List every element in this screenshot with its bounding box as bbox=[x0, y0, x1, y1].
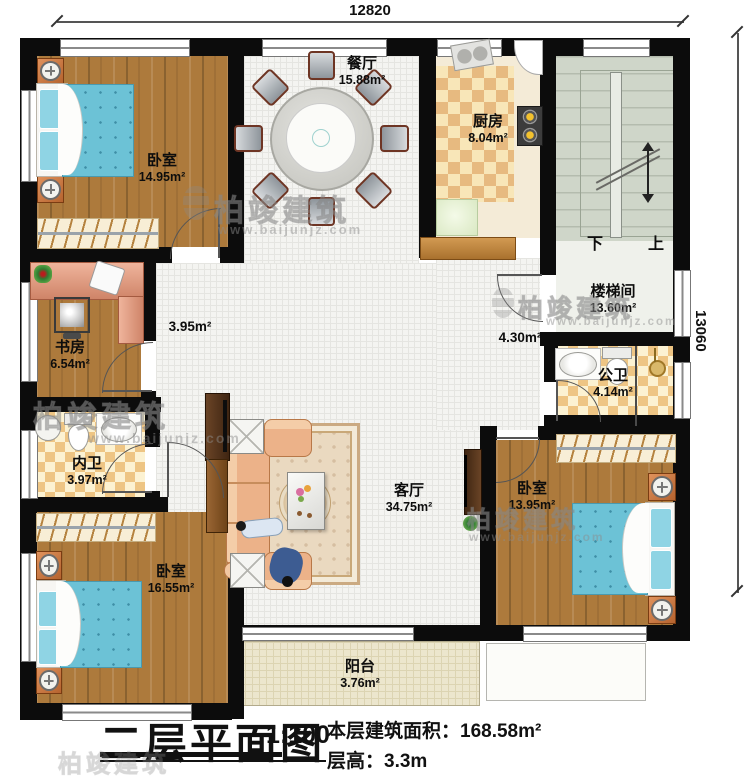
title-height-line: 层高：3.3m bbox=[327, 746, 427, 773]
window-right-landing bbox=[674, 270, 691, 337]
room-label-bedroom-br: 卧室 13.95m² bbox=[503, 481, 561, 512]
tv-screen-icon bbox=[223, 400, 227, 452]
kitchen-counter-slider bbox=[420, 237, 516, 260]
window-top-bedroomtl bbox=[60, 39, 190, 57]
dimension-line-top bbox=[57, 21, 684, 23]
nightstand bbox=[648, 596, 676, 624]
floor-drain-icon bbox=[649, 360, 666, 377]
area-label-hall-east: 4.30m² bbox=[492, 330, 548, 345]
cup-icon bbox=[297, 511, 302, 516]
door-bedroomtl-leaf bbox=[218, 208, 220, 258]
nightstand bbox=[37, 176, 64, 203]
door-bathpub-leaf bbox=[556, 380, 558, 421]
lamp-icon bbox=[40, 61, 61, 81]
area-value: 168.58m² bbox=[460, 721, 541, 742]
lamp-icon bbox=[39, 670, 59, 691]
room-label-stairwell: 楼梯间 13.60m² bbox=[575, 284, 651, 315]
dimension-right-value: 13060 bbox=[692, 310, 709, 380]
balcony-sliding-door bbox=[242, 627, 414, 641]
door-stairhall-leaf bbox=[497, 274, 542, 276]
stair-arrow-line bbox=[647, 150, 649, 194]
height-label: 层高： bbox=[327, 751, 384, 772]
side-table bbox=[230, 553, 265, 588]
stair-arrow-down-icon bbox=[642, 194, 654, 203]
window-right-bathpub bbox=[674, 362, 691, 419]
wall-stair-bath bbox=[540, 332, 690, 346]
room-label-balcony: 阳台 3.76m² bbox=[333, 659, 387, 690]
title-scale: 1:100 bbox=[266, 721, 330, 750]
kitchen-fridge bbox=[436, 199, 478, 236]
nightstand bbox=[36, 551, 62, 580]
title-underline-thin bbox=[100, 760, 326, 762]
room-label-bath-public: 公卫 4.14m² bbox=[585, 368, 641, 399]
sofa-three-seat bbox=[226, 443, 270, 567]
room-label-dining: 餐厅 15.88m² bbox=[330, 56, 394, 87]
dining-chair bbox=[308, 197, 335, 226]
shower-head-icon bbox=[35, 415, 61, 441]
title-underline-thick bbox=[100, 752, 282, 757]
person-head bbox=[236, 521, 246, 531]
stair-arrow-up-icon bbox=[642, 142, 654, 151]
room-label-living: 客厅 34.75m² bbox=[378, 483, 440, 514]
plant-icon bbox=[463, 516, 478, 531]
sink bbox=[101, 417, 137, 442]
room-label-kitchen: 厨房 8.04m² bbox=[455, 114, 521, 145]
leaf-icon bbox=[298, 496, 304, 502]
tv-screen-icon bbox=[464, 455, 467, 507]
door-bedroombl-leaf bbox=[167, 442, 169, 497]
shower-cord bbox=[654, 348, 656, 362]
wall-study-bottom bbox=[20, 397, 161, 412]
title-area-line: 本层建筑面积：168.58m² bbox=[327, 716, 541, 743]
coffee-table bbox=[287, 472, 325, 530]
window-bottom-bedroombr bbox=[523, 626, 647, 642]
wall-bedroomtl-bottom-b bbox=[220, 247, 244, 263]
floor-plan: 卧室 14.95m² 餐厅 15.88m² 厨房 8.04m² 楼梯间 13.6… bbox=[0, 0, 750, 782]
door-bathpriv-leaf bbox=[102, 491, 152, 493]
lamp-icon bbox=[39, 554, 59, 577]
room-label-bedroom-tl: 卧室 14.95m² bbox=[130, 153, 194, 184]
wall-bathpriv-bottom bbox=[20, 497, 168, 512]
wardrobe bbox=[37, 218, 159, 249]
computer-monitor-icon bbox=[54, 297, 90, 333]
terrace-outline bbox=[486, 643, 646, 701]
side-table bbox=[229, 419, 264, 454]
wardrobe bbox=[36, 513, 156, 542]
flower-icon bbox=[296, 488, 304, 496]
cup-icon bbox=[307, 513, 312, 518]
plant-icon bbox=[34, 265, 52, 283]
flower-icon bbox=[304, 485, 311, 492]
stair-flight-outline bbox=[580, 70, 678, 237]
person-head bbox=[282, 576, 293, 587]
height-value: 3.3m bbox=[384, 751, 427, 772]
pillow bbox=[650, 550, 672, 590]
wardrobe bbox=[556, 434, 676, 463]
window-left-bathpriv bbox=[21, 430, 38, 499]
nightstand bbox=[37, 58, 64, 84]
desk-return bbox=[118, 296, 144, 344]
dimension-line-right bbox=[737, 33, 739, 593]
lamp-icon bbox=[651, 476, 673, 498]
nightstand bbox=[648, 473, 676, 501]
lamp-icon bbox=[651, 599, 673, 621]
lamp-icon bbox=[40, 179, 61, 200]
door-bedroombr-leaf bbox=[496, 437, 539, 439]
area-label-hall-center: 3.95m² bbox=[162, 319, 218, 334]
wall-bathpriv-right bbox=[145, 397, 160, 447]
room-label-bath-private: 内卫 3.97m² bbox=[58, 456, 116, 487]
dimension-top-value: 12820 bbox=[325, 2, 415, 19]
stair-up-label: 上 bbox=[641, 236, 671, 254]
dining-chair bbox=[234, 125, 263, 152]
wall-bedroombr-left bbox=[480, 426, 496, 625]
window-top-stair bbox=[583, 39, 650, 57]
area-label: 本层建筑面积： bbox=[327, 721, 460, 742]
room-label-study: 书房 6.54m² bbox=[42, 340, 98, 371]
stair-divider bbox=[610, 72, 622, 238]
room-label-bedroom-bl: 卧室 16.55m² bbox=[142, 564, 200, 595]
stair-down-label: 下 bbox=[580, 236, 610, 254]
pillow bbox=[650, 508, 672, 548]
dining-chair bbox=[380, 125, 409, 152]
wall-kitchen-left bbox=[419, 38, 436, 258]
nightstand bbox=[36, 667, 62, 694]
dining-table-center bbox=[312, 129, 330, 147]
door-study-leaf bbox=[102, 390, 152, 392]
armchair bbox=[264, 419, 312, 457]
